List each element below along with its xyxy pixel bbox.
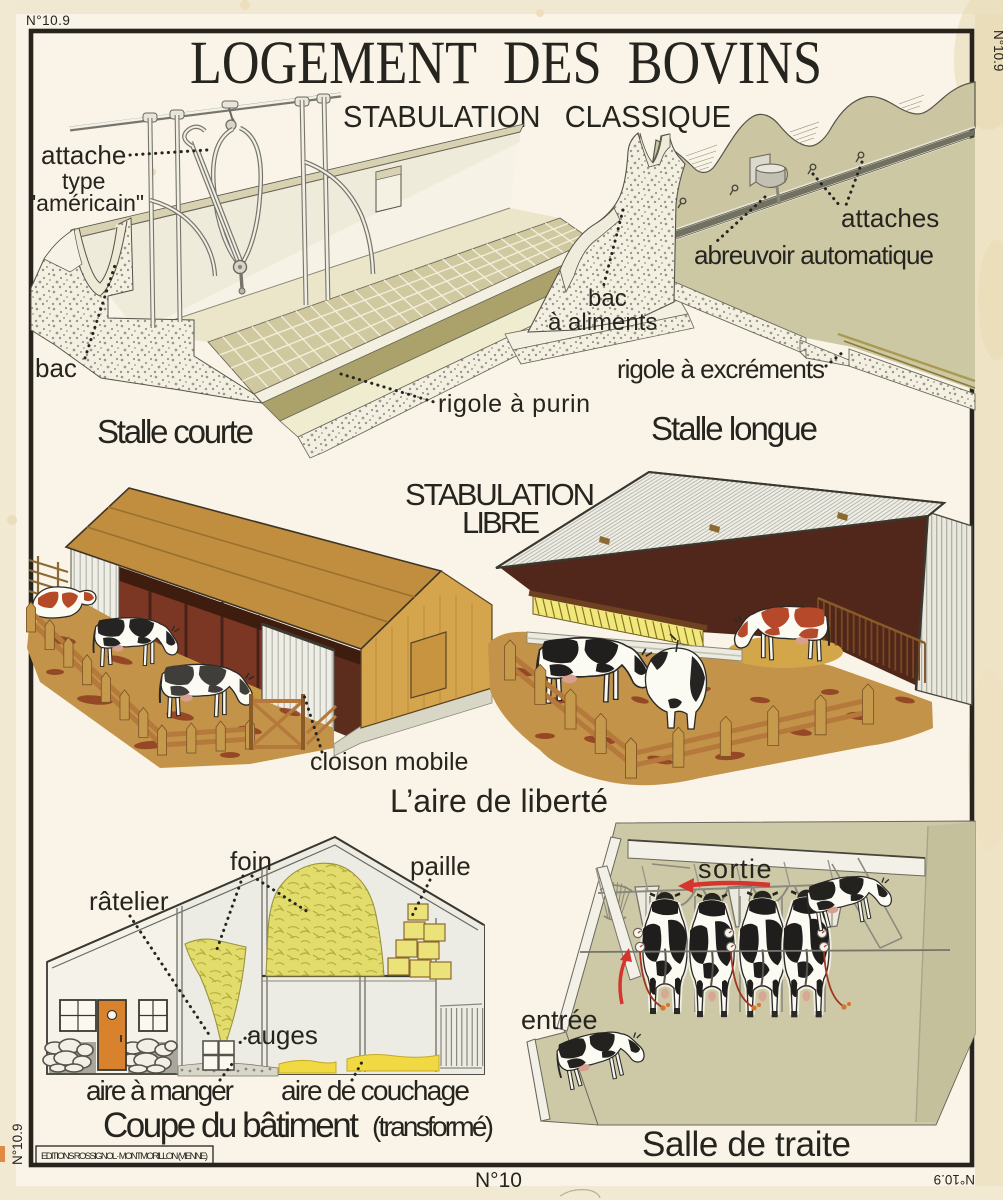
svg-text:bac: bac (588, 285, 627, 312)
svg-text:aire de couchage: aire de couchage (281, 1075, 470, 1106)
svg-text:Stalle longue: Stalle longue (651, 410, 818, 447)
svg-text:abreuvoir automatique: abreuvoir automatique (694, 240, 934, 270)
svg-text:N°10.9: N°10.9 (26, 13, 70, 28)
svg-text:(transformé): (transformé) (372, 1111, 494, 1142)
svg-text:attache: attache (41, 140, 126, 170)
svg-text:rigole à excréments: rigole à excréments (617, 354, 825, 384)
svg-text:bac: bac (35, 353, 77, 383)
svg-text:paille: paille (410, 851, 471, 881)
svg-text:aire à manger: aire à manger (86, 1075, 234, 1106)
svg-text:râtelier: râtelier (89, 886, 169, 916)
svg-text:à aliments: à aliments (548, 309, 657, 336)
svg-text:cloison mobile: cloison mobile (310, 748, 468, 776)
svg-text:rigole à purin: rigole à purin (438, 390, 590, 418)
svg-text:Salle de traite: Salle de traite (642, 1125, 851, 1164)
svg-text:EDITIONS ROSSIGNOL · MONTMORIL: EDITIONS ROSSIGNOL · MONTMORILLON (VIENN… (41, 1151, 208, 1162)
svg-text:attaches: attaches (841, 203, 939, 233)
svg-text:STABULATION CLASSIQUE: STABULATION CLASSIQUE (343, 99, 731, 134)
svg-text:sortie: sortie (698, 854, 773, 884)
svg-text:auges: auges (247, 1020, 318, 1050)
svg-text:LOGEMENT DES BOVINS: LOGEMENT DES BOVINS (190, 30, 822, 97)
svg-text:"américain": "américain" (28, 190, 144, 216)
svg-text:entrée: entrée (521, 1005, 598, 1035)
svg-text:Coupe du bâtiment: Coupe du bâtiment (103, 1106, 359, 1145)
svg-text:L’aire de liberté: L’aire de liberté (390, 783, 608, 819)
svg-text:Stalle courte: Stalle courte (97, 413, 254, 450)
svg-text:N°10.9: N°10.9 (10, 1124, 25, 1165)
svg-text:N°10: N°10 (475, 1169, 522, 1192)
svg-text:N°10.9: N°10.9 (991, 30, 1003, 71)
svg-text:foin: foin (230, 846, 272, 876)
svg-text:N°10.9: N°10.9 (934, 1172, 975, 1187)
svg-text:LIBRE: LIBRE (462, 505, 540, 540)
